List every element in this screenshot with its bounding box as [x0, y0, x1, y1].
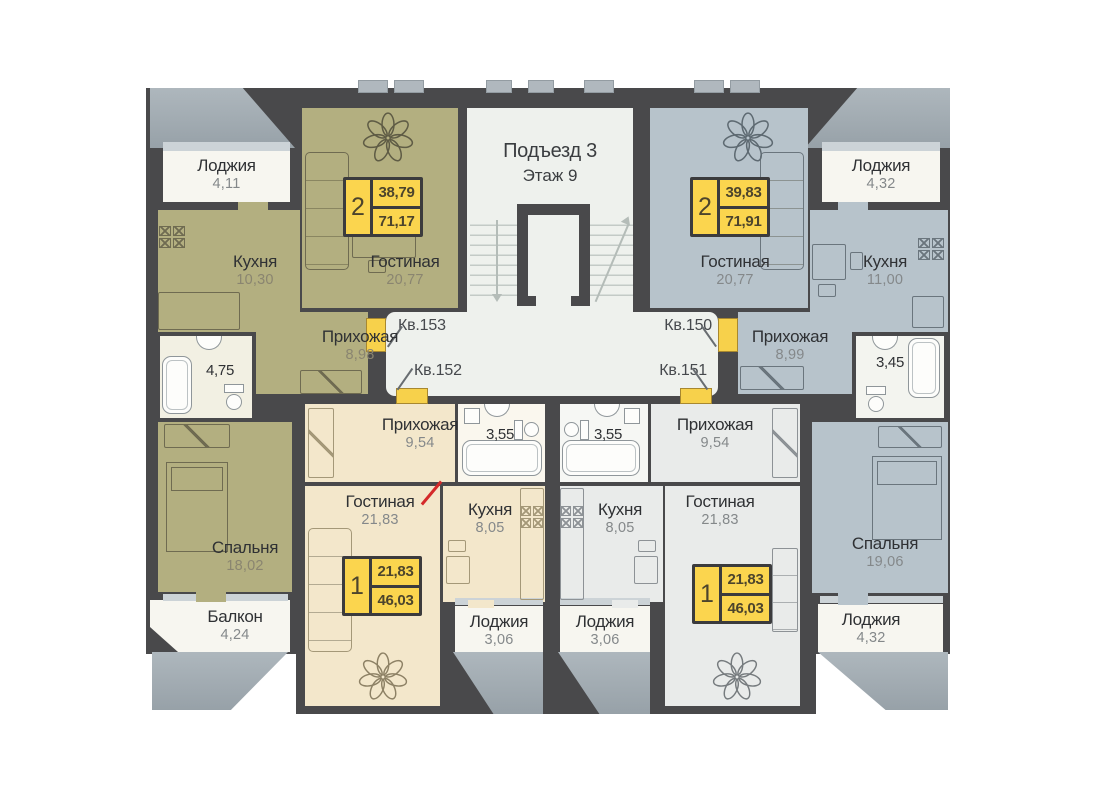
total-area-value: 71,91 [720, 209, 767, 235]
chair [368, 260, 386, 273]
bathtub [162, 356, 192, 414]
stairwell-title: Подъезд 3 Этаж 9 [467, 140, 633, 186]
stair-core-wall [571, 296, 590, 306]
door-opening [196, 590, 226, 602]
toilet [514, 420, 523, 440]
door-opening [468, 600, 494, 608]
hall-shelf [300, 370, 362, 394]
flower-icon [362, 112, 414, 164]
flower-icon [712, 652, 762, 702]
toilet-bowl [524, 422, 539, 437]
floor-label: Этаж 9 [467, 166, 633, 186]
wardrobe [878, 426, 942, 448]
stair-core-wall [517, 204, 528, 306]
total-area-value: 46,03 [372, 588, 419, 614]
toilet-bowl [226, 394, 242, 410]
kitchen-table [446, 556, 470, 584]
living-area-value: 39,83 [720, 180, 767, 206]
flower-icon [722, 112, 774, 164]
stair-core-wall [579, 204, 590, 306]
window-tab [694, 80, 724, 93]
apartment-badge-kv152[interactable]: 1 21,83 46,03 [342, 556, 422, 616]
balcony-shell-bottom-left [152, 652, 288, 710]
kitchen-table [812, 244, 846, 280]
door-opening [238, 202, 268, 212]
door-kv153 [366, 318, 386, 352]
chair [448, 540, 466, 552]
glazing [163, 142, 290, 151]
toilet [580, 420, 589, 440]
kitchen-counter [158, 292, 240, 330]
wardrobe [308, 408, 334, 478]
corridor-label-kv153[interactable]: Кв.153 [398, 317, 460, 335]
door-opening [612, 600, 638, 608]
window-tab [486, 80, 512, 93]
total-area-value: 71,17 [373, 209, 420, 235]
room-loggia-top-left[interactable] [163, 150, 290, 202]
window-tab [584, 80, 614, 93]
door-kv152 [396, 388, 428, 404]
total-area-value: 46,03 [722, 596, 769, 622]
stairs-down-arrow-icon [492, 294, 502, 302]
window-tab [730, 80, 760, 93]
stair-core-wall [517, 296, 536, 306]
room-kv152-loggia[interactable] [455, 606, 543, 652]
window-tab [358, 80, 388, 93]
entrance-label: Подъезд 3 [467, 140, 633, 163]
corridor-label-kv152[interactable]: Кв.152 [414, 362, 476, 380]
bed [872, 456, 942, 540]
stove-icon [521, 506, 543, 528]
flower-icon [358, 652, 408, 702]
toilet-bowl [868, 396, 884, 412]
stove-icon [918, 238, 944, 260]
door-kv151 [680, 388, 712, 404]
room-balcony-bottom-left[interactable] [150, 600, 290, 652]
chair [638, 540, 656, 552]
window-tab [394, 80, 424, 93]
stove-icon [159, 226, 185, 248]
stairs-direction-line [496, 220, 498, 294]
wardrobe [164, 424, 230, 448]
fridge [912, 296, 944, 328]
bathtub [462, 440, 542, 476]
chair [818, 284, 836, 297]
room-kv151-loggia[interactable] [560, 606, 650, 652]
kitchen-counter [560, 488, 584, 600]
toilet [866, 386, 886, 395]
apartment-badge-kv151[interactable]: 1 21,83 46,03 [692, 564, 772, 624]
door-kv150 [718, 318, 738, 352]
chair [850, 252, 863, 270]
kitchen-table [634, 556, 658, 584]
kitchen-counter [520, 488, 544, 600]
glazing [822, 142, 940, 151]
shelf [772, 548, 798, 632]
door-opening [838, 202, 868, 212]
door-opening [838, 591, 868, 605]
bed [166, 462, 228, 552]
living-area-value: 21,83 [372, 559, 419, 585]
living-area-value: 21,83 [722, 567, 769, 593]
apartment-badge-kv153[interactable]: 2 38,79 71,17 [343, 177, 423, 237]
bathtub [562, 440, 640, 476]
apartment-badge-kv150[interactable]: 2 39,83 71,91 [690, 177, 770, 237]
floor-plan: Подъезд 3 Этаж 9 Кв.153 Кв.152 Кв.150 Кв… [0, 0, 1100, 800]
room-loggia-bottom-right[interactable] [818, 604, 943, 652]
washing-machine [624, 408, 640, 424]
toilet [224, 384, 244, 393]
hall-shelf [740, 366, 804, 390]
living-area-value: 38,79 [373, 180, 420, 206]
wardrobe [772, 408, 798, 478]
washing-machine [464, 408, 480, 424]
stove-icon [561, 506, 583, 528]
bathtub [908, 338, 940, 398]
loggia-shell-bottom-right [818, 652, 948, 710]
room-loggia-top-right[interactable] [822, 150, 940, 202]
window-tab [528, 80, 554, 93]
toilet-bowl [564, 422, 579, 437]
